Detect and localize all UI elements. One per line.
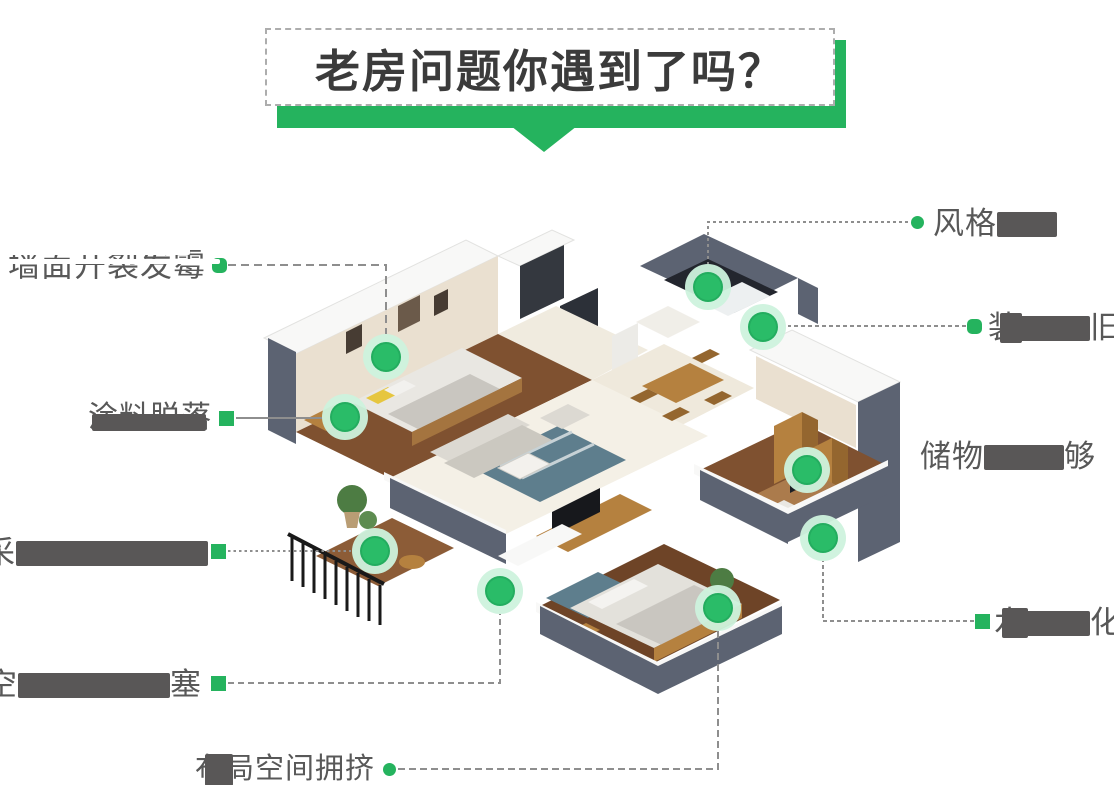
label-text: 旧 <box>1090 310 1114 345</box>
label-pipes-clogged: 空塞 <box>0 668 202 701</box>
artifact-overlay <box>1002 608 1028 638</box>
hotspot-marker[interactable] <box>740 304 786 350</box>
page-title: 老房问题你遇到了吗？ <box>315 35 785 100</box>
label-style-outdated: 风格 <box>933 207 1057 240</box>
label-text: 采 <box>0 535 16 570</box>
artifact-overlay <box>92 414 206 431</box>
label-dot <box>211 676 226 691</box>
covered-text-block <box>997 212 1057 237</box>
title-box: 老房问题你遇到了吗？ <box>265 28 835 106</box>
hotspot-marker[interactable] <box>800 515 846 561</box>
hotspot-marker[interactable] <box>352 528 398 574</box>
infographic-canvas: 老房问题你遇到了吗？ 墙面开裂发霉涂料脱落采空塞布局空间拥挤风格装旧储物够水化 <box>0 0 1114 785</box>
label-dot <box>911 216 924 229</box>
hotspot-marker[interactable] <box>784 447 830 493</box>
label-dot <box>219 411 234 426</box>
label-wall-crack-mold: 墙面开裂发霉 <box>8 248 206 283</box>
covered-text-block <box>18 673 170 698</box>
label-paint-peeling: 涂料脱落 <box>88 402 212 434</box>
artifact-overlay <box>4 259 220 264</box>
label-text: 化 <box>1090 605 1114 640</box>
label-dot <box>383 763 396 776</box>
label-text: 塞 <box>170 667 202 702</box>
artifact-overlay <box>4 238 190 255</box>
covered-text-block <box>1026 611 1090 636</box>
label-storage-not-enough: 储物够 <box>920 440 1096 473</box>
label-text: 储物 <box>920 439 984 474</box>
label-decor-old: 装旧 <box>988 311 1114 344</box>
label-dot <box>211 544 226 559</box>
title-pointer-icon <box>511 126 577 152</box>
label-layout-crowded: 布局空间拥挤 <box>195 754 375 785</box>
hotspot-marker[interactable] <box>477 568 523 614</box>
hotspot-marker[interactable] <box>695 585 741 631</box>
hotspot-marker[interactable] <box>363 334 409 380</box>
covered-text-block <box>1020 316 1090 341</box>
hotspot-marker[interactable] <box>322 394 368 440</box>
artifact-overlay <box>1000 313 1022 343</box>
covered-text-block <box>16 541 208 566</box>
label-dot <box>975 614 990 629</box>
covered-text-block <box>984 445 1064 470</box>
label-plumbing-wiring-aged: 水化 <box>994 606 1114 639</box>
hotspot-marker[interactable] <box>685 264 731 310</box>
label-text: 够 <box>1064 439 1096 474</box>
label-dot <box>967 319 982 334</box>
artifact-overlay <box>205 754 233 785</box>
label-text: 空 <box>0 667 18 702</box>
label-poor-daylight: 采 <box>0 536 208 569</box>
label-text: 风格 <box>933 206 997 241</box>
